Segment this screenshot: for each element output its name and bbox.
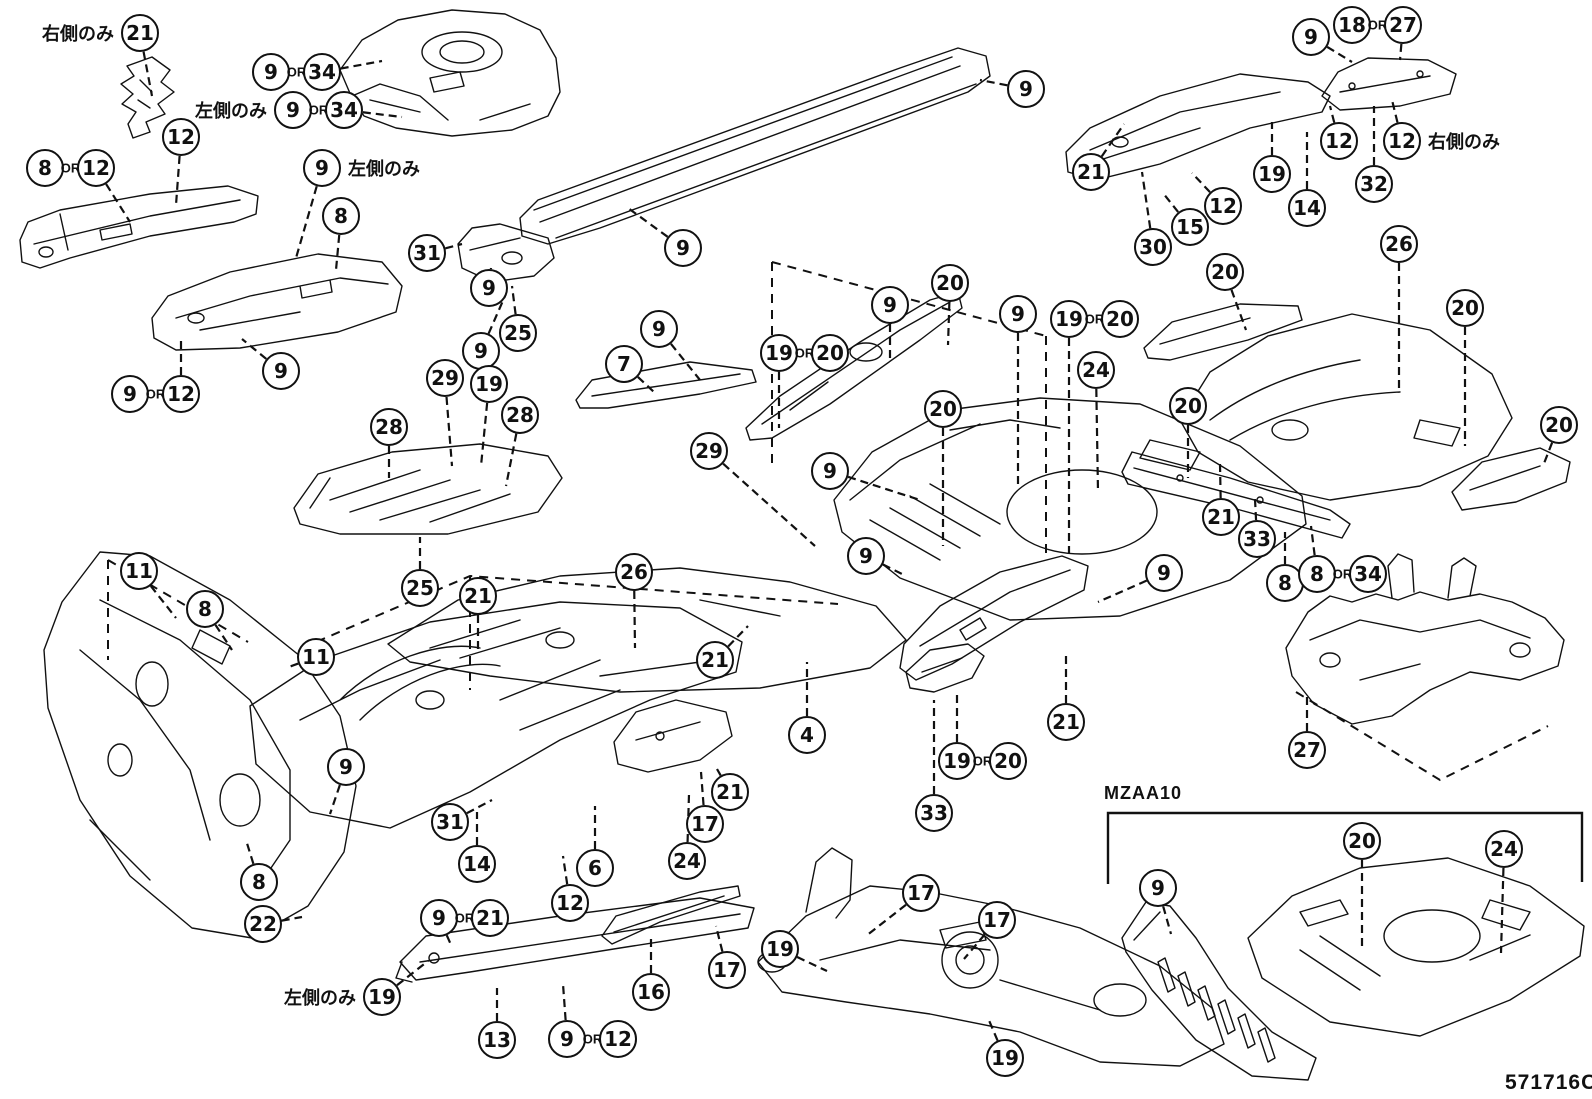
- leader-lines: [106, 44, 1552, 1041]
- section-label: MZAA10: [1104, 783, 1182, 804]
- leader-line: [336, 235, 339, 270]
- part-front-floor-brace: [576, 362, 756, 408]
- leader-line: [1163, 906, 1171, 934]
- leader-line: [151, 586, 176, 618]
- callout-9[interactable]: 9: [470, 269, 508, 307]
- callout-12[interactable]: 12: [162, 118, 200, 156]
- leader-line: [286, 664, 298, 668]
- part-mzaa10-floor-pan: [1248, 858, 1584, 1036]
- callout-12[interactable]: 12: [162, 375, 200, 413]
- callout-19[interactable]: 19: [1253, 155, 1291, 193]
- callout-20[interactable]: 20: [924, 390, 962, 428]
- callout-8[interactable]: 8: [240, 863, 278, 901]
- callout-21[interactable]: 21: [1072, 153, 1110, 191]
- part-rear-floor-pan: [1180, 314, 1512, 500]
- callout-7[interactable]: 7: [605, 345, 643, 383]
- side-note: 右側のみ: [42, 20, 114, 46]
- callout-4[interactable]: 4: [788, 716, 826, 754]
- part-front-floor-side-panel: [294, 444, 562, 534]
- callout-34[interactable]: 34: [1349, 555, 1387, 593]
- leader-line: [848, 477, 920, 500]
- callout-9[interactable]: 9: [1139, 869, 1177, 907]
- callout-21[interactable]: 21: [471, 899, 509, 937]
- callout-20[interactable]: 20: [1540, 406, 1578, 444]
- leader-line: [176, 156, 180, 205]
- leader-line: [330, 785, 340, 814]
- diagram-code: 571716C: [1505, 1071, 1592, 1095]
- callout-9[interactable]: 9: [1007, 70, 1045, 108]
- callout-21[interactable]: 21: [1202, 498, 1240, 536]
- leader-line: [1102, 124, 1124, 156]
- part-front-wheelhouse: [340, 10, 560, 136]
- callout-20[interactable]: 20: [931, 264, 969, 302]
- callout-14[interactable]: 14: [458, 845, 496, 883]
- side-note: 右側のみ: [1428, 128, 1500, 154]
- part-cowl-side-bracket: [614, 700, 732, 772]
- callout-8[interactable]: 8: [322, 197, 360, 235]
- leader-line: [1163, 193, 1178, 212]
- callout-17[interactable]: 17: [978, 901, 1016, 939]
- callout-12[interactable]: 12: [1204, 187, 1242, 225]
- callout-25[interactable]: 25: [401, 569, 439, 607]
- side-note: 左側のみ: [195, 97, 267, 123]
- part-floor-tunnel: [250, 602, 742, 828]
- leader-line: [1255, 499, 1256, 520]
- callout-19[interactable]: 19: [363, 978, 401, 1016]
- callout-12[interactable]: 12: [551, 884, 589, 922]
- callout-21[interactable]: 21: [696, 641, 734, 679]
- callout-8[interactable]: 8: [1298, 555, 1336, 593]
- leader-line: [671, 344, 700, 380]
- leader-line: [563, 984, 566, 1020]
- callout-12[interactable]: 12: [1383, 122, 1421, 160]
- leader-line: [341, 61, 382, 69]
- callout-29[interactable]: 29: [426, 359, 464, 397]
- leader-line: [1192, 173, 1210, 192]
- leader-line: [866, 905, 906, 936]
- leader-line: [242, 339, 266, 359]
- callout-9[interactable]: 9: [640, 310, 678, 348]
- callout-8[interactable]: 8: [26, 149, 64, 187]
- callout-19[interactable]: 19: [1050, 300, 1088, 338]
- callout-9[interactable]: 9: [252, 53, 290, 91]
- callout-9[interactable]: 9: [420, 899, 458, 937]
- callout-20[interactable]: 20: [1446, 289, 1484, 327]
- leader-line: [1501, 868, 1503, 953]
- leader-line: [447, 397, 452, 466]
- callout-12[interactable]: 12: [1320, 122, 1358, 160]
- leader-line: [1220, 464, 1221, 498]
- side-note: 左側のみ: [284, 984, 356, 1010]
- callout-19[interactable]: 19: [986, 1039, 1024, 1077]
- callout-19[interactable]: 19: [938, 742, 976, 780]
- callout-20[interactable]: 20: [1169, 387, 1207, 425]
- callout-33[interactable]: 33: [1238, 520, 1276, 558]
- callout-9[interactable]: 9: [262, 352, 300, 390]
- callout-26[interactable]: 26: [1380, 225, 1418, 263]
- callout-21[interactable]: 21: [1047, 703, 1085, 741]
- part-rear-floor-bracket-front: [1144, 304, 1302, 360]
- parts-diagram-stage: MZAA10 571716C 21右側のみ9OR349OR34左側のみ128OR…: [0, 0, 1592, 1099]
- callout-9[interactable]: 9: [871, 286, 909, 324]
- callout-25[interactable]: 25: [499, 314, 537, 352]
- callout-19[interactable]: 19: [761, 930, 799, 968]
- callout-31[interactable]: 31: [408, 234, 446, 272]
- callout-22[interactable]: 22: [244, 905, 282, 943]
- callout-30[interactable]: 30: [1134, 228, 1172, 266]
- callout-21[interactable]: 21: [121, 14, 159, 52]
- part-front-apron-lower: [152, 254, 402, 350]
- leader-line: [447, 935, 452, 947]
- leader-line: [363, 112, 402, 117]
- callout-12[interactable]: 12: [599, 1020, 637, 1058]
- callout-18[interactable]: 18: [1333, 6, 1371, 44]
- leader-line: [1400, 44, 1401, 60]
- leader-line: [1392, 100, 1397, 123]
- leader-line: [1096, 389, 1098, 492]
- leader-line: [106, 184, 130, 222]
- callout-20[interactable]: 20: [1206, 253, 1244, 291]
- leader-line: [1330, 106, 1334, 123]
- callout-9[interactable]: 9: [664, 229, 702, 267]
- side-note: 左側のみ: [348, 155, 420, 181]
- callout-20[interactable]: 20: [811, 334, 849, 372]
- leader-line: [1327, 47, 1352, 62]
- callout-20[interactable]: 20: [1101, 300, 1139, 338]
- callout-21[interactable]: 21: [459, 577, 497, 615]
- leader-line: [506, 434, 516, 486]
- callout-9[interactable]: 9: [1292, 18, 1330, 56]
- leader-line: [467, 800, 492, 813]
- callout-33[interactable]: 33: [915, 794, 953, 832]
- callout-17[interactable]: 17: [686, 805, 724, 843]
- callout-24[interactable]: 24: [1485, 830, 1523, 868]
- leader-line: [1543, 443, 1552, 466]
- callout-13[interactable]: 13: [478, 1021, 516, 1059]
- callout-20[interactable]: 20: [1343, 822, 1381, 860]
- leader-line: [512, 286, 516, 314]
- callout-8[interactable]: 8: [186, 590, 224, 628]
- callout-17[interactable]: 17: [902, 874, 940, 912]
- callout-28[interactable]: 28: [370, 408, 408, 446]
- parts-illustration: [0, 0, 1592, 1099]
- leader-line: [723, 464, 815, 546]
- callout-26[interactable]: 26: [615, 553, 653, 591]
- leader-line: [1142, 172, 1150, 228]
- part-rear-floor-bracket-side: [1452, 448, 1570, 510]
- leader-line: [1098, 581, 1147, 602]
- part-mzaa10-side-panel: [1122, 902, 1316, 1080]
- callout-34[interactable]: 34: [303, 53, 341, 91]
- callout-9[interactable]: 9: [999, 295, 1037, 333]
- leader-line: [246, 840, 253, 864]
- part-rear-member-extension: [1322, 58, 1456, 110]
- callout-11[interactable]: 11: [297, 638, 335, 676]
- callout-21[interactable]: 21: [711, 773, 749, 811]
- callout-9[interactable]: 9: [548, 1020, 586, 1058]
- part-front-apron-upper: [20, 186, 258, 268]
- callout-12[interactable]: 12: [77, 149, 115, 187]
- callout-6[interactable]: 6: [576, 849, 614, 887]
- callout-9[interactable]: 9: [462, 332, 500, 370]
- part-dash-heat-bracket: [458, 224, 554, 282]
- leader-line: [988, 1018, 998, 1041]
- callout-17[interactable]: 17: [708, 951, 746, 989]
- callout-34[interactable]: 34: [325, 91, 363, 129]
- callout-28[interactable]: 28: [501, 396, 539, 434]
- callout-15[interactable]: 15: [1171, 208, 1209, 246]
- leader-line: [716, 926, 722, 952]
- leader-line: [638, 377, 655, 393]
- leader-line: [445, 244, 462, 248]
- leader-line: [1231, 290, 1246, 330]
- leader-line: [634, 591, 635, 648]
- callout-9[interactable]: 9: [1145, 554, 1183, 592]
- leader-line: [701, 772, 704, 805]
- callout-9[interactable]: 9: [274, 91, 312, 129]
- callout-19[interactable]: 19: [470, 365, 508, 403]
- leader-line: [628, 208, 668, 237]
- part-rocker-sill: [520, 48, 990, 244]
- callout-24[interactable]: 24: [668, 842, 706, 880]
- callout-19[interactable]: 19: [760, 334, 798, 372]
- callout-9[interactable]: 9: [303, 149, 341, 187]
- callout-9[interactable]: 9: [327, 748, 365, 786]
- callout-14[interactable]: 14: [1288, 189, 1326, 227]
- callout-27[interactable]: 27: [1288, 731, 1326, 769]
- callout-32[interactable]: 32: [1355, 165, 1393, 203]
- callout-20[interactable]: 20: [989, 742, 1027, 780]
- callout-27[interactable]: 27: [1384, 6, 1422, 44]
- callout-9[interactable]: 9: [811, 452, 849, 490]
- callout-29[interactable]: 29: [690, 432, 728, 470]
- callout-11[interactable]: 11: [120, 552, 158, 590]
- callout-9[interactable]: 9: [847, 537, 885, 575]
- leader-line: [563, 856, 567, 884]
- callout-31[interactable]: 31: [431, 803, 469, 841]
- leader-line: [296, 186, 317, 258]
- leader-line: [948, 302, 949, 345]
- callout-24[interactable]: 24: [1077, 351, 1115, 389]
- callout-9[interactable]: 9: [111, 375, 149, 413]
- leader-line: [481, 403, 487, 466]
- callout-16[interactable]: 16: [632, 973, 670, 1011]
